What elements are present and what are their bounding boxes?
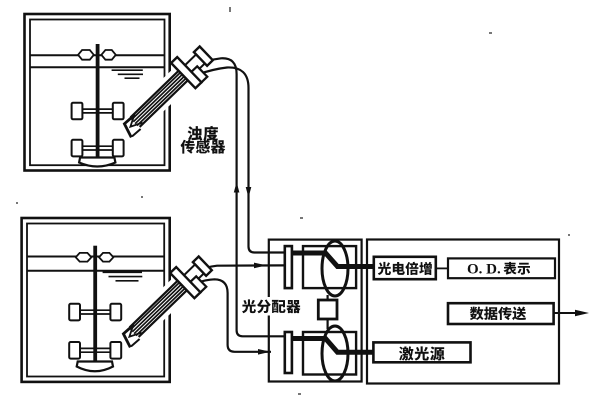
svg-text:O. D.: O. D. <box>467 261 501 277</box>
